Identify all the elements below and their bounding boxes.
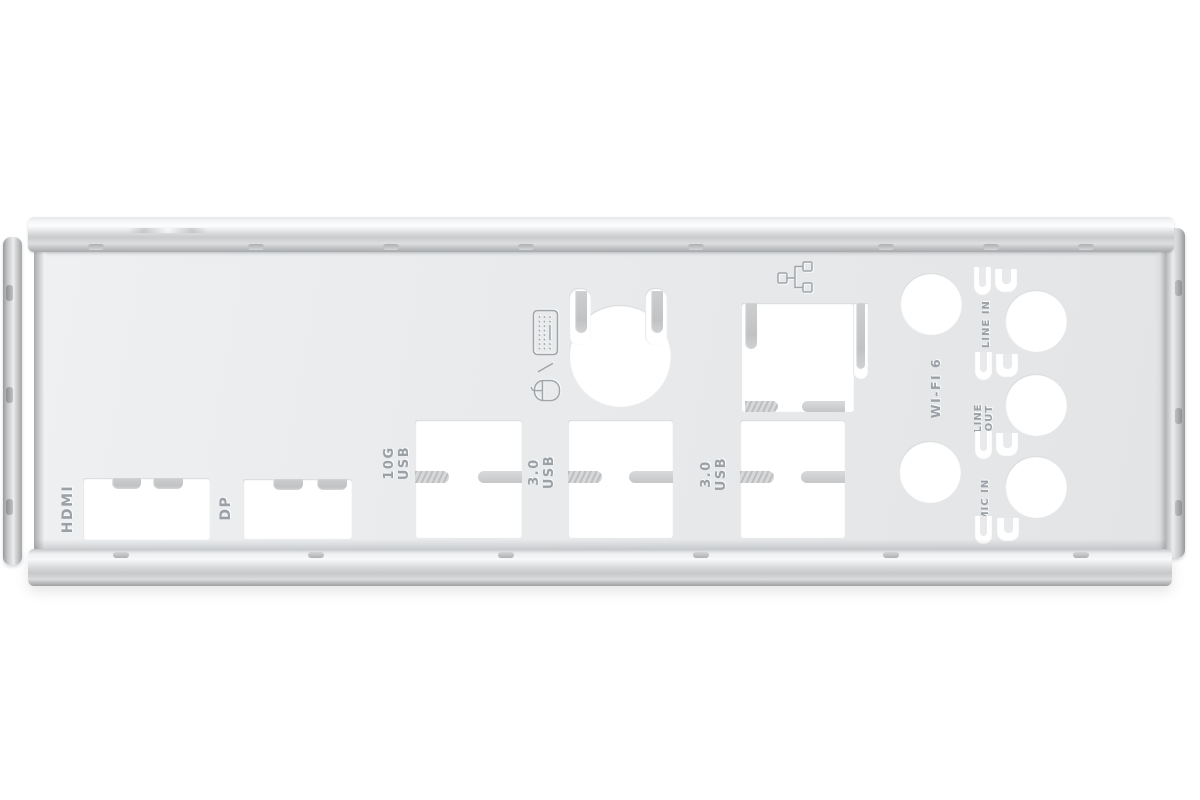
- mouse-icon: [531, 380, 561, 402]
- audio-hole-mic-in: [1005, 456, 1067, 518]
- displayport-label: DP: [218, 493, 234, 523]
- rail-notch: [113, 552, 129, 558]
- rail-notch: [498, 552, 514, 558]
- ps2-icon-group: [528, 309, 564, 404]
- emi-finger-tab: [112, 478, 141, 489]
- usb-10g-label: 10GUSB: [382, 440, 412, 486]
- rail-notch: [308, 552, 324, 558]
- flange-notch: [6, 499, 13, 515]
- keyboard-icon: [533, 310, 559, 356]
- emi-finger-tab: [575, 291, 587, 333]
- io-shield-photo: HDMI DP 10GUSB 3.0USB 3.0USB: [0, 0, 1200, 800]
- hdmi-label: HDMI: [60, 477, 76, 541]
- emi-finger: [415, 471, 449, 483]
- emi-finger-tab: [153, 478, 183, 489]
- flange-notch: [1175, 500, 1182, 516]
- rail-notch: [693, 552, 709, 558]
- emi-finger-tab: [856, 303, 865, 369]
- u-ground-cutout: [996, 354, 1018, 378]
- rail-notch: [1078, 244, 1094, 250]
- wifi-label: WI-FI 6: [928, 351, 944, 425]
- u-ground-cutout: [975, 352, 992, 381]
- flange-notch: [6, 387, 13, 403]
- u-ground-cutout: [974, 267, 991, 296]
- emi-finger: [478, 471, 522, 483]
- emi-finger: [802, 401, 845, 412]
- plate-right-fold: [1155, 248, 1166, 549]
- ethernet-port-cutout: [741, 303, 854, 412]
- u-ground-cutout: [997, 518, 1019, 542]
- audio-hole-line-in: [1005, 290, 1067, 352]
- emi-finger-tab: [745, 303, 757, 349]
- u-ground-cutout: [995, 269, 1017, 293]
- u-ground-cutout: [975, 516, 992, 545]
- rail-notch: [878, 244, 894, 250]
- top-rail: [28, 217, 1174, 252]
- emi-finger-tab: [317, 479, 347, 490]
- right-spring-flange: [1163, 228, 1185, 558]
- wifi-antenna-hole-1: [900, 273, 962, 335]
- rail-notch: [383, 244, 399, 250]
- bottom-rail: [28, 549, 1172, 586]
- rail-notch: [983, 244, 999, 250]
- ethernet-icon: [777, 260, 813, 294]
- emi-finger: [801, 471, 845, 483]
- hdmi-port-cutout: [83, 478, 210, 540]
- emi-finger: [568, 471, 602, 483]
- rail-notch: [1073, 552, 1089, 558]
- rail-notch: [248, 244, 264, 250]
- usb-3-0-label-a: 3.0USB: [527, 447, 557, 497]
- rail-notch: [518, 244, 534, 250]
- emi-finger-tab: [651, 291, 663, 333]
- wifi-antenna-hole-2: [899, 441, 961, 503]
- rail-notch: [88, 244, 104, 250]
- emi-finger-tab: [273, 479, 303, 490]
- u-ground-cutout: [996, 433, 1018, 457]
- rail-notch: [883, 552, 899, 558]
- emi-finger: [740, 471, 774, 483]
- line-in-label: LINE IN: [981, 297, 993, 351]
- usb-3-0-label-b: 3.0USB: [699, 449, 729, 499]
- flange-notch: [1175, 280, 1182, 296]
- slash-separator-icon: [538, 363, 554, 373]
- left-spring-flange: [3, 237, 22, 565]
- plate-left-fold: [34, 248, 48, 549]
- flange-notch: [1175, 408, 1182, 424]
- emi-finger: [745, 401, 778, 412]
- stamp-mark: [128, 228, 208, 233]
- rail-notch: [688, 244, 704, 250]
- shield-plate: HDMI DP 10GUSB 3.0USB 3.0USB: [34, 248, 1166, 549]
- flange-notch: [6, 285, 13, 301]
- emi-finger: [629, 471, 673, 483]
- u-ground-cutout: [975, 431, 992, 460]
- audio-hole-line-out: [1005, 374, 1067, 436]
